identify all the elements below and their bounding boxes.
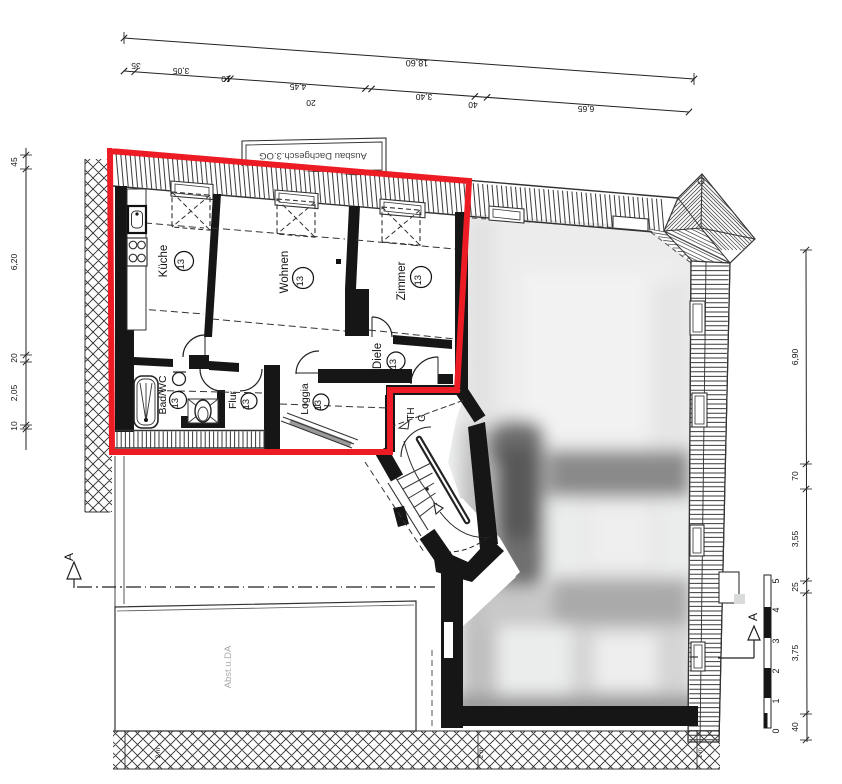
svg-text:Zimmer: Zimmer — [396, 261, 408, 300]
svg-text:6,90: 6,90 — [790, 348, 800, 365]
svg-text:20: 20 — [9, 353, 19, 363]
svg-text:13: 13 — [313, 400, 324, 411]
svg-text:Bad/WC: Bad/WC — [157, 375, 169, 415]
svg-text:13: 13 — [241, 399, 252, 410]
svg-text:2 m: 2 m — [478, 748, 485, 759]
svg-text:Ausbau Dachgesch.3.OG: Ausbau Dachgesch.3.OG — [259, 150, 367, 161]
svg-text:45: 45 — [9, 157, 19, 167]
svg-text:13: 13 — [295, 276, 306, 287]
svg-text:1 m: 1 m — [698, 748, 704, 758]
svg-text:0: 0 — [771, 728, 781, 733]
svg-text:40: 40 — [468, 100, 478, 110]
svg-text:2: 2 — [771, 668, 781, 673]
svg-text:13: 13 — [413, 275, 424, 286]
svg-text:Wohnen: Wohnen — [279, 251, 291, 294]
svg-text:G: G — [417, 414, 428, 422]
svg-text:10: 10 — [9, 421, 19, 431]
svg-text:3,55: 3,55 — [790, 530, 800, 547]
svg-text:18,60: 18,60 — [406, 58, 429, 68]
svg-text:10: 10 — [221, 74, 231, 84]
svg-text:40: 40 — [790, 722, 800, 732]
svg-text:3,05: 3,05 — [172, 66, 189, 76]
svg-text:6,65: 6,65 — [577, 104, 594, 114]
svg-text:3,75: 3,75 — [790, 644, 800, 661]
svg-text:Abst.u.DA: Abst.u.DA — [223, 645, 234, 688]
svg-text:13: 13 — [170, 398, 181, 409]
svg-text:4,45: 4,45 — [289, 82, 306, 92]
svg-text:A: A — [62, 553, 76, 561]
svg-text:2 m: 2 m — [155, 748, 162, 759]
svg-text:Diele: Diele — [372, 343, 384, 369]
svg-text:A: A — [746, 613, 760, 621]
svg-text:70: 70 — [790, 471, 800, 481]
svg-text:13: 13 — [176, 259, 187, 270]
svg-text:6,20: 6,20 — [9, 253, 19, 270]
svg-text:4: 4 — [771, 607, 781, 612]
svg-text:1: 1 — [771, 698, 781, 703]
svg-text:3,40: 3,40 — [415, 92, 432, 102]
svg-text:13: 13 — [388, 359, 399, 370]
svg-text:20: 20 — [306, 98, 316, 108]
svg-text:TH: TH — [406, 407, 417, 420]
svg-text:Küche: Küche — [158, 245, 170, 278]
svg-text:5: 5 — [771, 578, 781, 583]
svg-text:35: 35 — [131, 61, 141, 71]
svg-text:Flur: Flur — [227, 390, 239, 409]
svg-text:3: 3 — [771, 638, 781, 643]
svg-text:25: 25 — [790, 582, 800, 592]
svg-text:Loggia: Loggia — [299, 383, 311, 415]
svg-text:2,05: 2,05 — [9, 384, 19, 401]
